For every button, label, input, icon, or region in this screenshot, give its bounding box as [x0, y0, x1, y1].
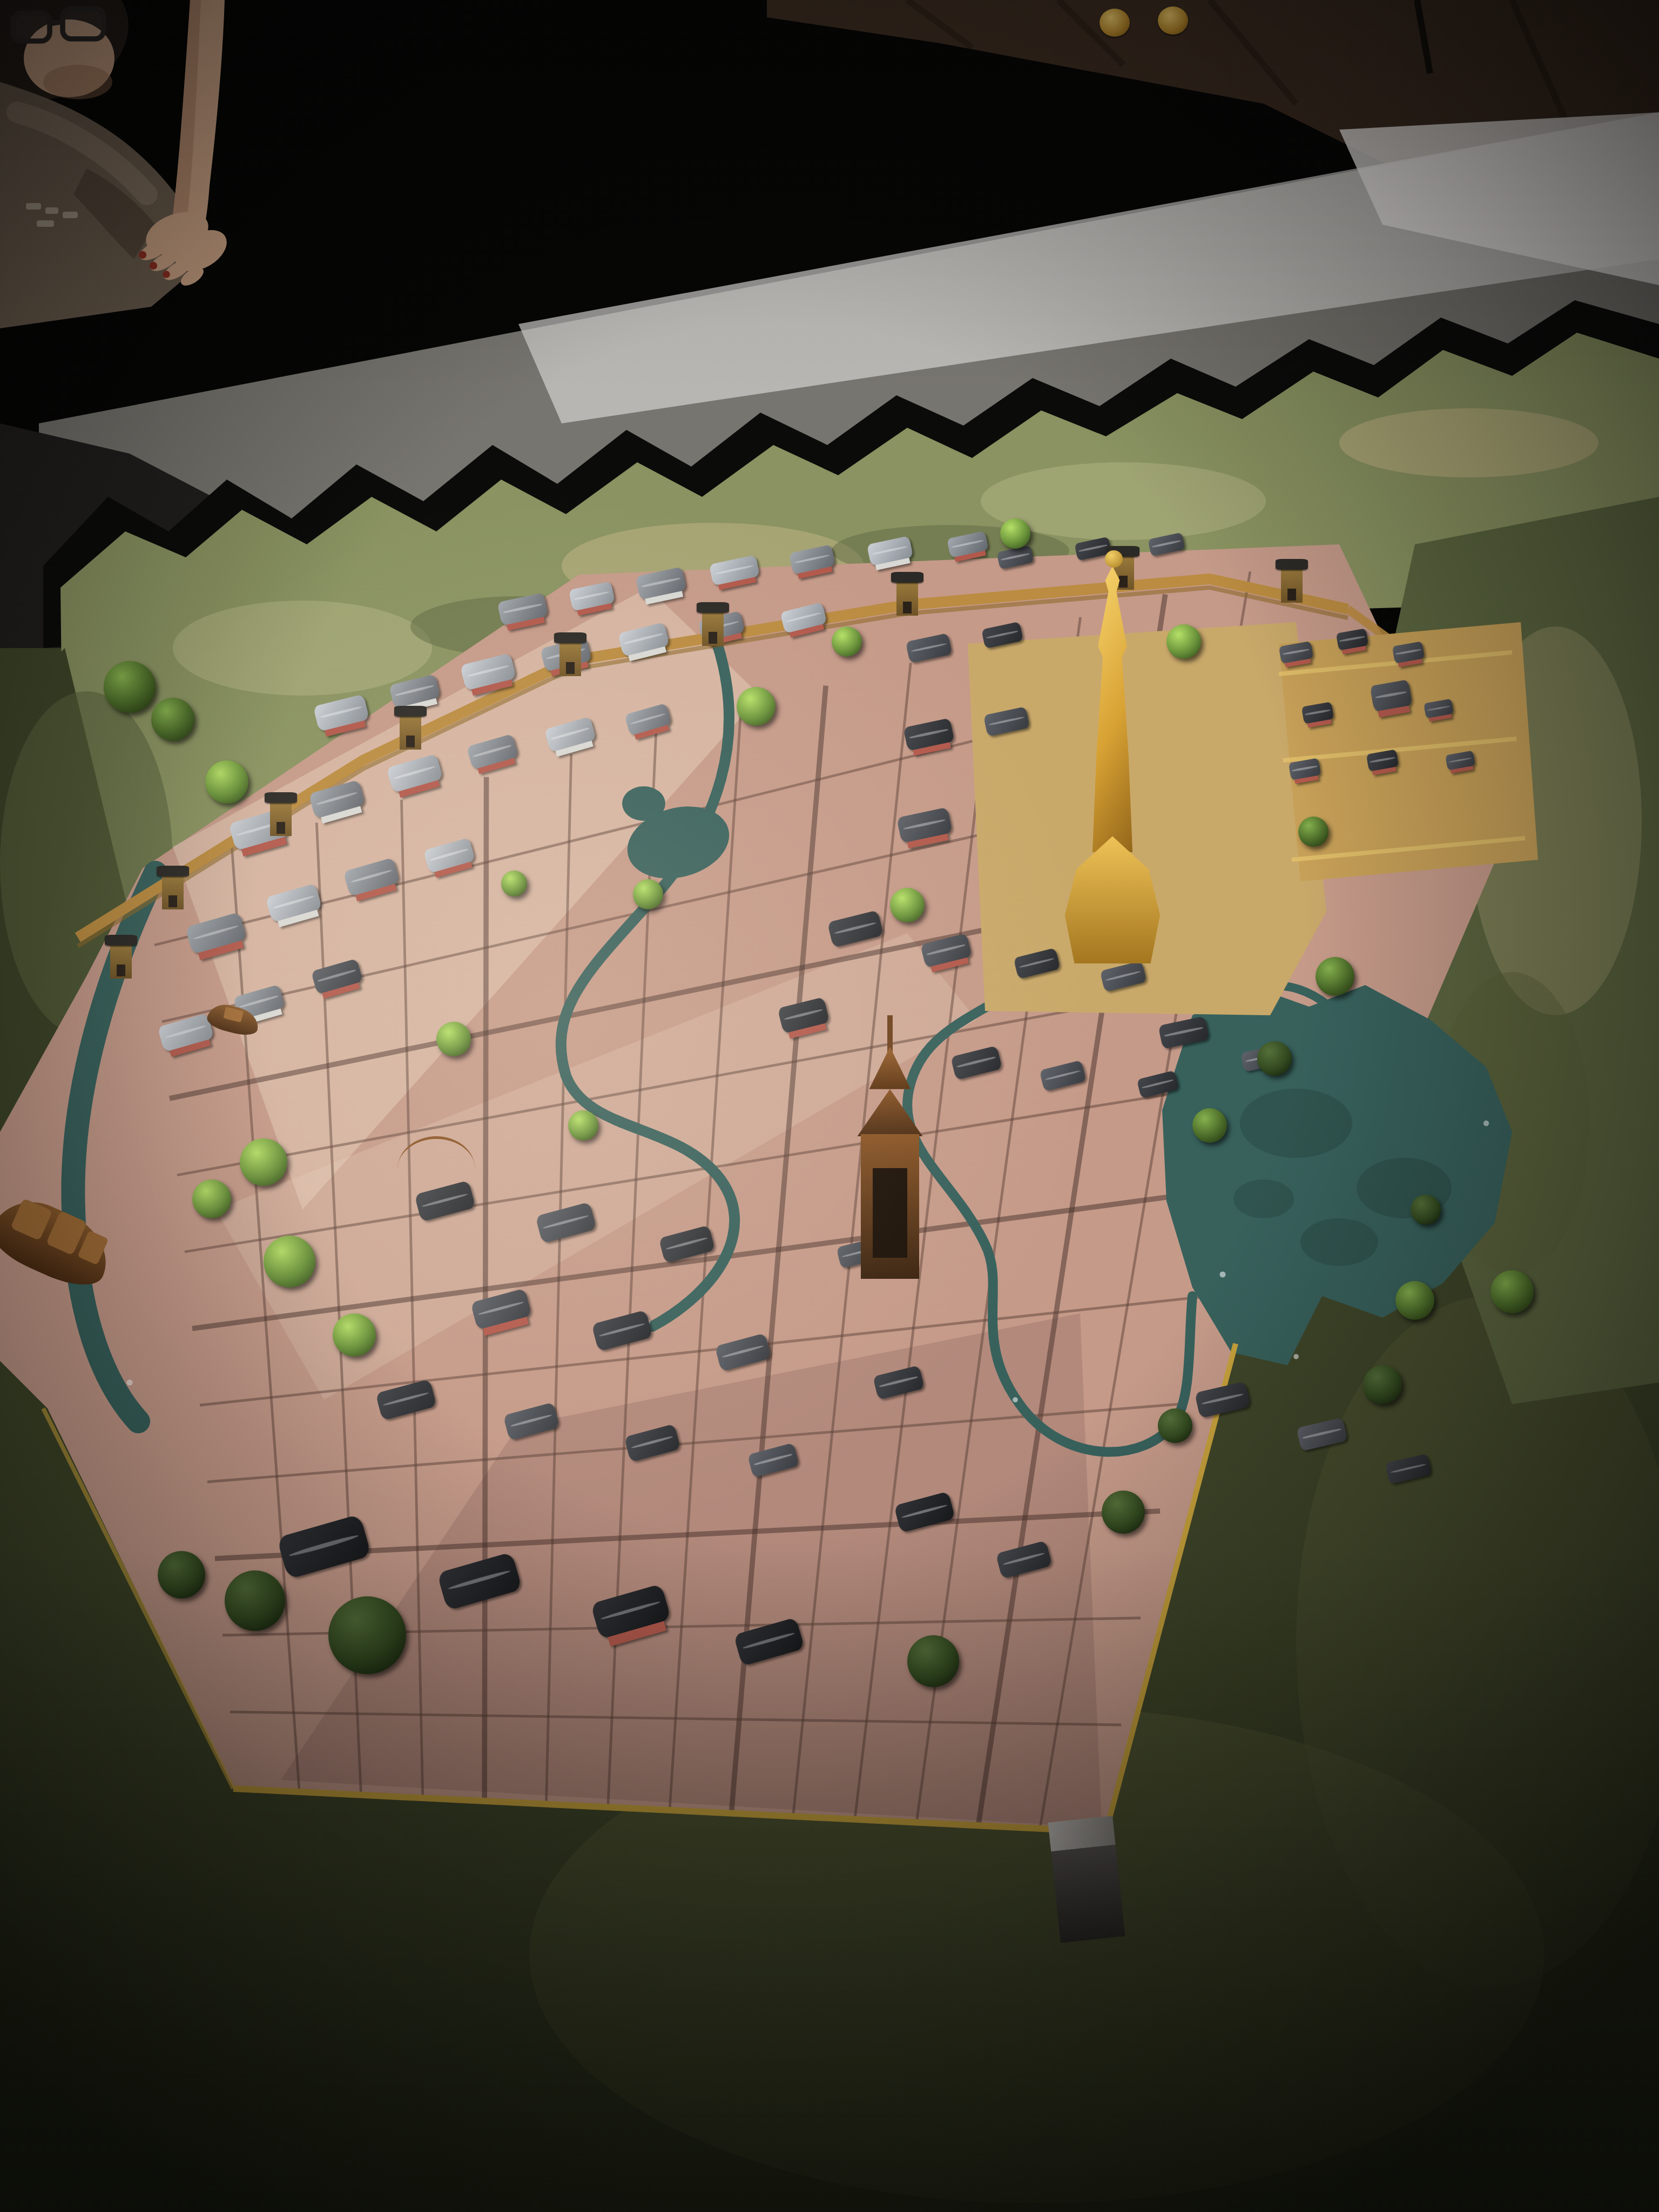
museum-diorama-photo — [0, 0, 1659, 2212]
photo-vignette — [0, 0, 1659, 2212]
